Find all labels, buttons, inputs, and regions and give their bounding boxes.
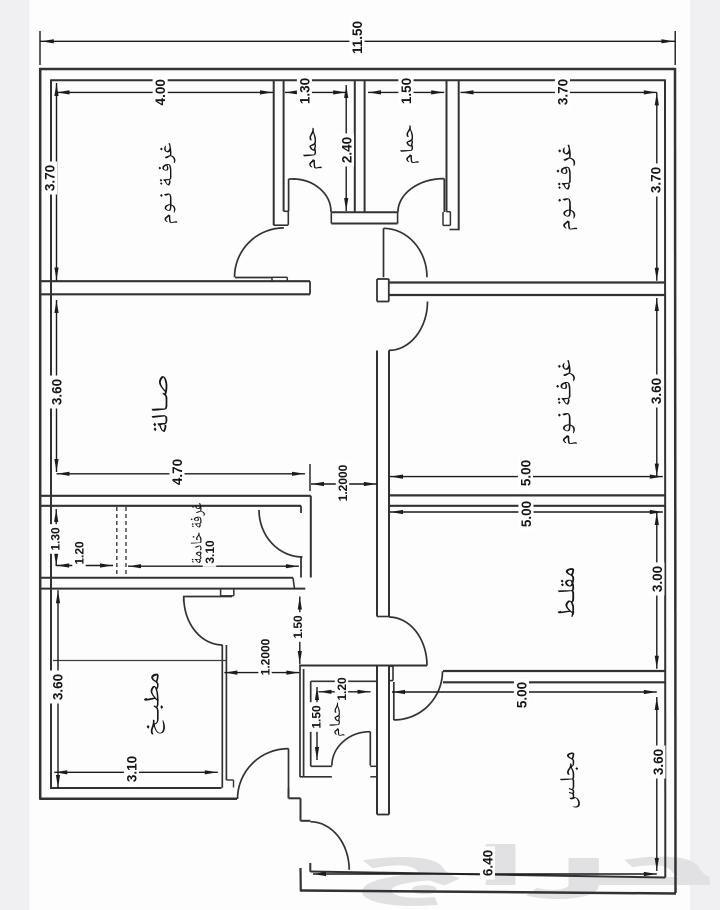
- svg-text:1.30: 1.30: [298, 78, 313, 104]
- svg-text:3.60: 3.60: [51, 674, 66, 700]
- svg-text:1.50: 1.50: [310, 705, 324, 729]
- svg-text:3.70: 3.70: [649, 167, 664, 193]
- svg-text:3.60: 3.60: [649, 378, 664, 404]
- svg-text:5.00: 5.00: [519, 460, 534, 486]
- svg-text:2.40: 2.40: [340, 137, 355, 163]
- svg-text:3.70: 3.70: [556, 79, 571, 105]
- svg-text:5.00: 5.00: [519, 501, 534, 527]
- svg-text:3.00: 3.00: [650, 566, 665, 592]
- svg-text:1.20: 1.20: [73, 541, 87, 565]
- svg-text:3.10: 3.10: [203, 540, 217, 564]
- svg-text:1.50: 1.50: [291, 615, 305, 639]
- svg-text:1.20: 1.20: [335, 677, 349, 701]
- svg-text:3.10: 3.10: [125, 756, 140, 782]
- svg-text:3.60: 3.60: [651, 749, 666, 775]
- svg-text:1.2000: 1.2000: [259, 638, 273, 675]
- svg-text:1.50: 1.50: [399, 78, 414, 104]
- svg-text:4.00: 4.00: [153, 79, 168, 105]
- svg-text:1.2000: 1.2000: [336, 464, 350, 501]
- svg-text:11.50: 11.50: [350, 21, 365, 54]
- svg-text:1.30: 1.30: [49, 527, 63, 551]
- svg-text:4.70: 4.70: [170, 459, 185, 485]
- svg-text:3.70: 3.70: [43, 165, 58, 191]
- svg-text:6.40: 6.40: [481, 850, 496, 876]
- svg-text:3.60: 3.60: [50, 379, 65, 405]
- svg-text:5.00: 5.00: [515, 682, 530, 708]
